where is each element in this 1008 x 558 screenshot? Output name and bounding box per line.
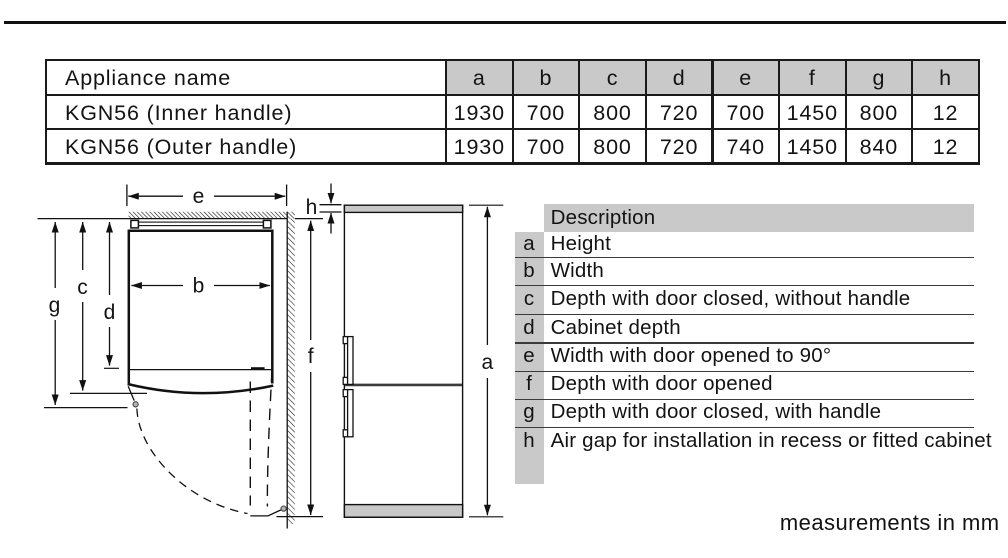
svg-text:g: g: [49, 294, 61, 317]
svg-text:b: b: [193, 275, 205, 298]
svg-text:e: e: [193, 185, 205, 208]
svg-text:c: c: [77, 276, 88, 299]
svg-text:f: f: [308, 345, 314, 368]
svg-text:d: d: [104, 301, 116, 324]
svg-text:a: a: [482, 351, 494, 374]
svg-text:h: h: [306, 196, 318, 219]
